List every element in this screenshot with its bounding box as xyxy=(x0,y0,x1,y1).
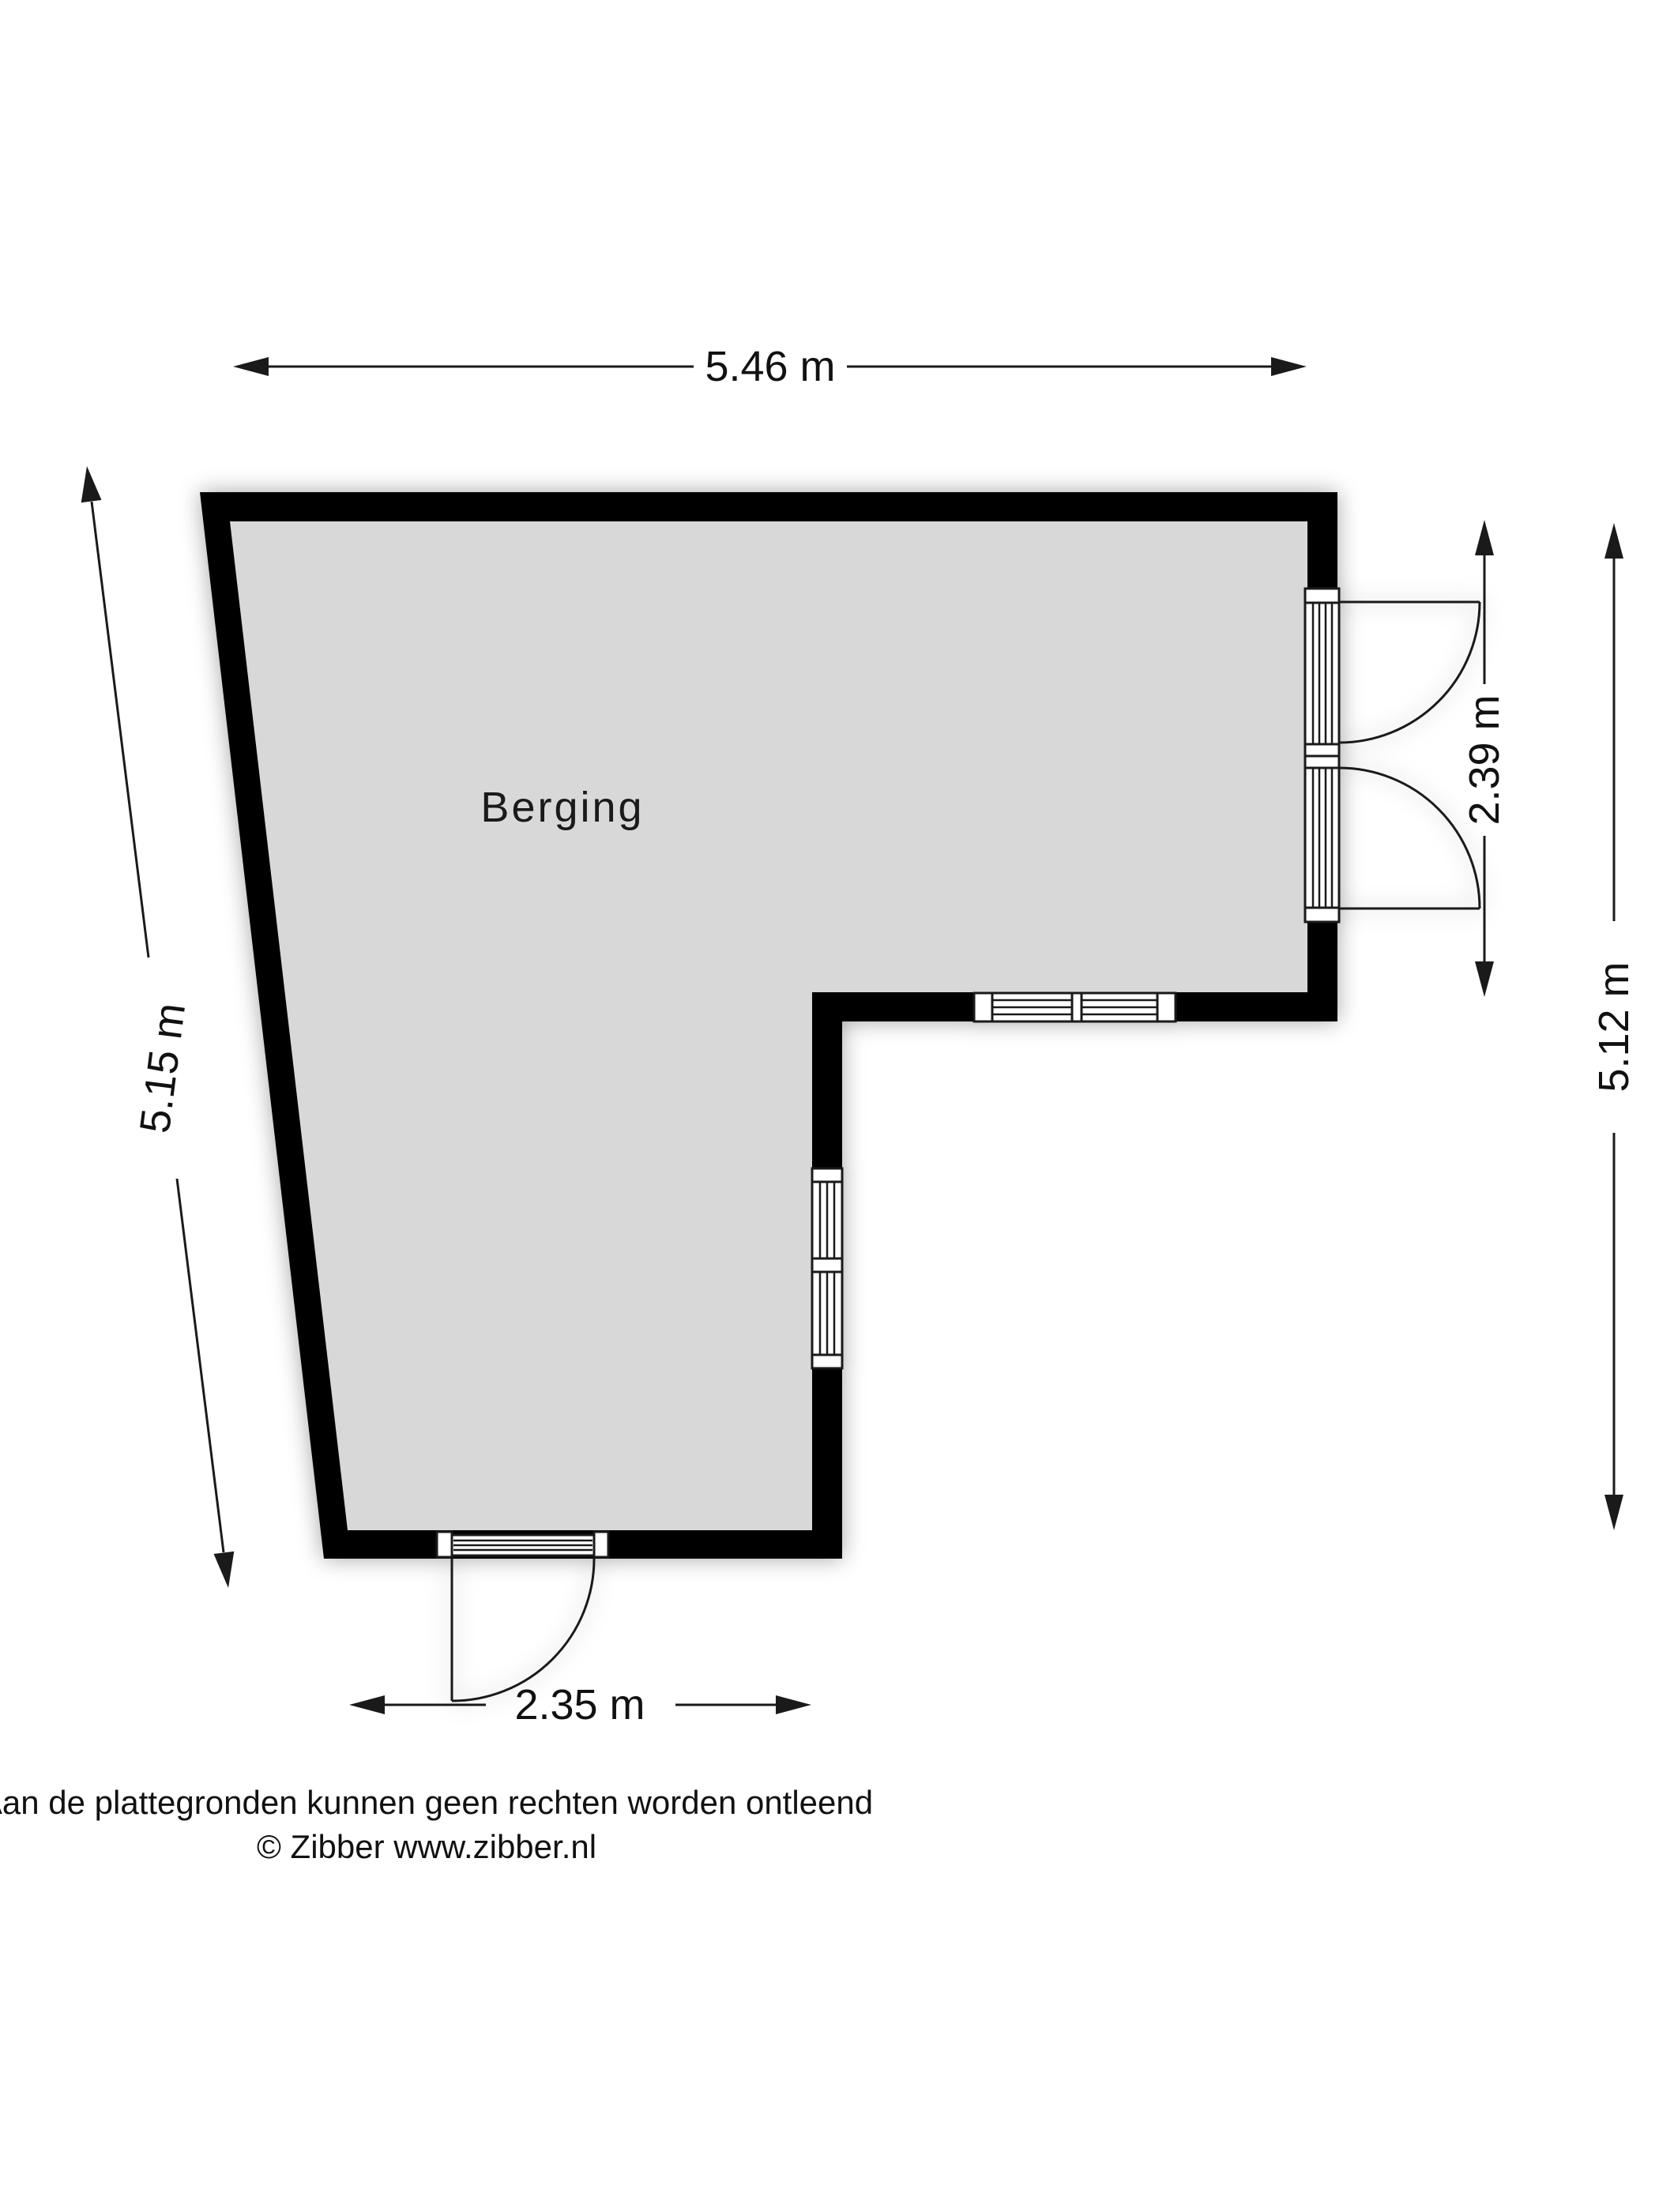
room-floor xyxy=(200,492,1337,1559)
dimension-top: 5.46 m xyxy=(233,343,1307,390)
door-swing-lower xyxy=(1339,768,1480,908)
arrowhead-down xyxy=(1604,1495,1623,1530)
arrowhead-up xyxy=(1475,520,1494,555)
floor-plan-canvas: Berging 5.46 m 5.15 m 2.39 m 5.12 m xyxy=(0,0,1659,2212)
arrowhead-down xyxy=(1475,961,1494,997)
dimension-bottom: 2.35 m xyxy=(349,1681,811,1729)
room-label: Berging xyxy=(480,784,644,831)
disclaimer-text: Aan de plattegronden kunnen geen rechten… xyxy=(0,1784,873,1821)
arrowhead-right xyxy=(776,1695,811,1714)
window-inner-west xyxy=(812,1168,842,1368)
copyright-text: © Zibber www.zibber.nl xyxy=(257,1828,596,1865)
dimension-top-label: 5.46 m xyxy=(705,343,835,390)
dimension-left: 5.15 m xyxy=(81,466,235,1588)
dimension-right-door: 2.39 m xyxy=(1461,520,1508,997)
door-swing-upper xyxy=(1339,602,1480,743)
building xyxy=(200,492,1480,1701)
dimension-right: 5.12 m xyxy=(1590,523,1638,1530)
double-door-east xyxy=(1305,589,1480,922)
dimension-right-door-label: 2.39 m xyxy=(1461,694,1508,825)
dimension-right-label: 5.12 m xyxy=(1590,961,1638,1092)
door-swing xyxy=(452,1559,594,1701)
window-south-east xyxy=(974,993,1176,1021)
arrowhead-left xyxy=(233,357,269,376)
arrowhead-bottom xyxy=(214,1552,235,1588)
arrowhead-left xyxy=(349,1695,385,1714)
arrowhead-right xyxy=(1271,357,1307,376)
dimension-left-label: 5.15 m xyxy=(131,1000,194,1135)
dimension-bottom-label: 2.35 m xyxy=(514,1681,645,1729)
arrowhead-top xyxy=(81,466,102,502)
arrowhead-up xyxy=(1604,523,1623,559)
